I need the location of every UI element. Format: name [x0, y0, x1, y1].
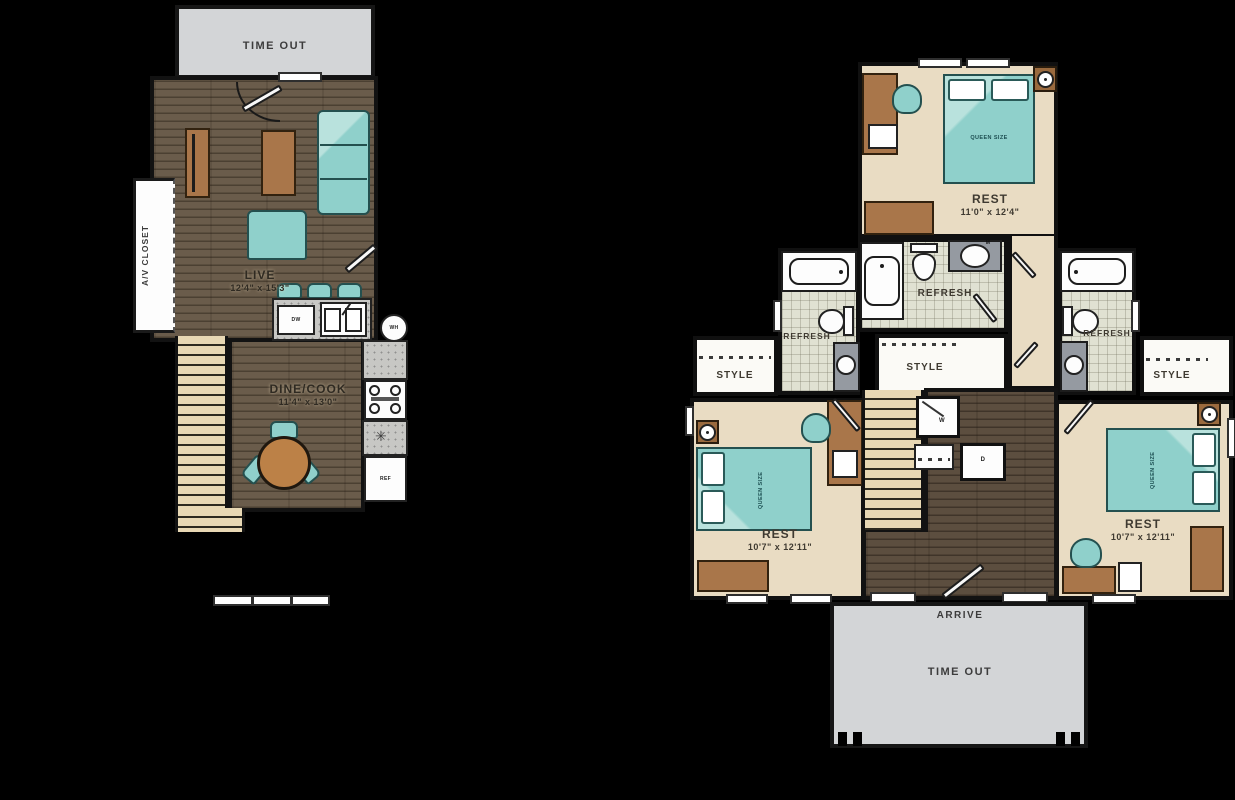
sofa-cushion-line [320, 178, 367, 180]
bath-left-name: REFRESH [783, 331, 831, 341]
bedroom-left-bed-label: QUEEN SIZE [758, 455, 764, 525]
bed-pillow [701, 452, 725, 486]
bar-stool [337, 283, 362, 299]
living-room-name: LIVE [190, 268, 330, 283]
bedroom-top-label: REST 11'0" x 12'4" [920, 192, 1060, 218]
closet-right-label: STYLE [1140, 370, 1204, 383]
linen-shelf-marks [918, 458, 950, 461]
bedroom-left-window [685, 406, 694, 436]
deck-post [853, 732, 862, 746]
bedroom-left-ceiling-speaker-icon [696, 420, 719, 444]
bedroom-left-window [726, 594, 768, 604]
dining-room-dims: 11'4" x 13'0" [248, 397, 368, 408]
linen-shelf [914, 444, 954, 470]
closet-left-name: STYLE [716, 370, 753, 381]
bedroom-top-ceiling-speaker-icon [1033, 66, 1057, 92]
sofa [317, 110, 370, 215]
refrigerator: REF [364, 456, 407, 502]
bath-mid-tub [860, 242, 904, 320]
bedroom-left-window [790, 594, 832, 604]
tv-icon [192, 134, 195, 192]
closet-left-label: STYLE [700, 370, 770, 383]
bath-left-sink [836, 355, 856, 375]
bedroom-right-laptop [1118, 562, 1142, 592]
av-closet-label: A/V CLOSET [140, 205, 151, 305]
dining-room-label: DINE/COOK 11'4" x 13'0" [248, 382, 368, 408]
closet-mid-name: STYLE [906, 362, 943, 373]
bedroom-right-ceiling-speaker-icon [1197, 402, 1221, 426]
bedroom-right-window [1227, 418, 1235, 458]
speaker-dot-icon [1201, 406, 1218, 423]
tub-drain [880, 264, 884, 268]
bath-right-name: REFRESH [1083, 328, 1131, 338]
tub-drain [1074, 270, 1078, 274]
bath-right-door [1131, 300, 1140, 332]
dishwasher-label: DW [292, 317, 301, 323]
deck-post [1071, 732, 1080, 746]
bath-right-label: REFRESH [1080, 328, 1134, 339]
deck-post [1056, 732, 1065, 746]
bed-pillow [948, 79, 986, 101]
floor1-deck-label: TIME OUT [195, 40, 355, 52]
bedroom-left-name: REST [700, 527, 860, 542]
floor1-stairs [175, 336, 228, 510]
tv-console [185, 128, 210, 198]
tub-basin [864, 256, 899, 306]
bedroom-top-window [966, 58, 1010, 68]
bedroom-right-dims: 10'7" x 12'11" [1078, 532, 1208, 543]
bedroom-left-laptop [832, 450, 858, 478]
bath-left-label: REFRESH [779, 331, 835, 342]
floor2-hallway-floor-lower [862, 528, 928, 600]
dryer-label: D [977, 457, 989, 463]
bath-mid-sink [960, 244, 990, 268]
armchair [247, 210, 307, 260]
floor1-window-bar [213, 595, 330, 606]
bedroom-top-dims: 11'0" x 12'4" [920, 207, 1060, 218]
bedroom-top-desk-chair [892, 84, 922, 114]
washer-label: W [936, 418, 948, 424]
bedroom-right-label: REST 10'7" x 12'11" [1078, 517, 1208, 543]
deck-door-threshold [278, 72, 322, 82]
kitchen-counter-upper [362, 340, 408, 380]
sink-basin-right [345, 308, 362, 332]
bath-right-sink [1064, 355, 1084, 375]
bedroom-top-laptop [868, 124, 898, 149]
speaker-dot-icon [1037, 71, 1054, 88]
living-room-label: LIVE 12'4" x 15'3" [190, 268, 330, 294]
bedroom-right-desk [1062, 566, 1116, 594]
bedroom-right-window [1092, 594, 1136, 604]
bed-pillow [1192, 433, 1216, 467]
floorplan-canvas: TIME OUT A/V CLOSET DW WH ✳ REF [0, 0, 1235, 800]
counter-faucet-star: ✳ [375, 428, 387, 445]
living-room-dims: 12'4" x 15'3" [190, 283, 330, 294]
closet-left [693, 336, 778, 396]
bed-pillow [1192, 471, 1216, 505]
water-heater: WH [380, 314, 408, 342]
bath-mid-toilet-tank [910, 243, 938, 253]
bedroom-left-label: REST 10'7" x 12'11" [700, 527, 860, 553]
bed-pillow [701, 490, 725, 524]
closet-left-rail [699, 356, 771, 359]
water-heater-label: WH [390, 325, 399, 331]
speaker-dot-icon [699, 424, 716, 441]
closet-right [1140, 336, 1233, 396]
bedroom-top-name: REST [920, 192, 1060, 207]
bedroom-left-dims: 10'7" x 12'11" [700, 542, 860, 553]
closet-mid-rail [882, 343, 956, 346]
tub-drain [839, 270, 843, 274]
bedroom-right-bed-label: QUEEN SIZE [1150, 435, 1156, 505]
closet-mid-label: STYLE [890, 362, 960, 375]
bedroom-left-desk-chair [801, 413, 831, 443]
dining-table [257, 436, 311, 490]
floor1-stairs-landing [175, 508, 245, 532]
bedroom-top-window [918, 58, 962, 68]
bed-pillow [991, 79, 1029, 101]
bath-right-tub [1060, 251, 1134, 292]
dishwasher: DW [277, 305, 315, 335]
deck-post [838, 732, 847, 746]
tub-basin [1068, 258, 1127, 285]
bath-left-door [773, 300, 782, 332]
coffee-table [261, 130, 296, 196]
entry-label: ARRIVE [890, 610, 1030, 621]
refrigerator-label: REF [380, 476, 391, 482]
bedroom-right-name: REST [1078, 517, 1208, 532]
bath-left-tub [781, 251, 857, 292]
closet-right-name: STYLE [1153, 370, 1190, 381]
sofa-cushion-line [320, 144, 367, 146]
stove-burner [369, 385, 380, 396]
bedroom-left-dresser [697, 560, 769, 592]
closet-right-rail [1146, 358, 1208, 361]
stove-burner [390, 403, 401, 414]
stove-burner [369, 403, 380, 414]
floor2-deck-label: TIME OUT [880, 666, 1040, 678]
bath-mid-mirror-tag: M [983, 240, 993, 246]
bedroom-top-bed-label: QUEEN SIZE [948, 135, 1030, 141]
stove-burner [390, 385, 401, 396]
stove-control-bar [371, 397, 399, 401]
bath-mid-name: REFRESH [918, 288, 973, 299]
dining-room-name: DINE/COOK [248, 382, 368, 397]
tub-basin [789, 258, 849, 285]
